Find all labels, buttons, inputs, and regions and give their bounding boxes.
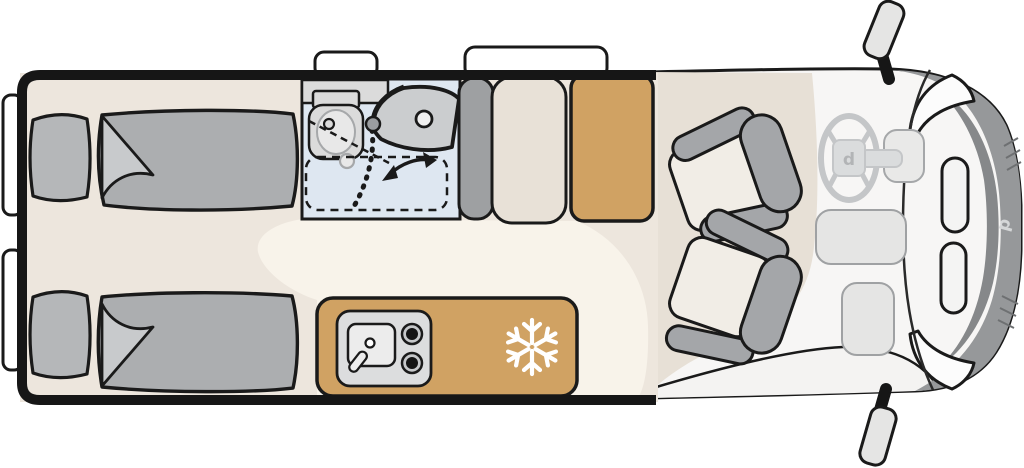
toilet-seat <box>317 110 355 154</box>
dashboard-panel <box>816 210 906 264</box>
pillow <box>30 115 90 201</box>
center-console <box>842 283 894 355</box>
bed-top <box>30 110 297 210</box>
partition-backrest <box>459 78 493 219</box>
toilet-flush-button <box>324 119 334 129</box>
side-mirror-bottom <box>858 389 899 467</box>
swivel-pivot <box>366 117 380 131</box>
bench-seat <box>492 77 566 223</box>
side-mirror-top <box>861 0 907 79</box>
bathroom <box>302 79 460 219</box>
washbasin-drain <box>416 111 432 127</box>
kitchen-block <box>317 298 577 396</box>
steering-column <box>860 150 902 167</box>
hob-burner-top <box>402 324 422 344</box>
wardrobe <box>571 75 653 221</box>
hood-vent-bottom <box>941 243 966 313</box>
cab-section: d d <box>650 69 1021 398</box>
hood-vent-top <box>942 158 968 232</box>
faucet <box>366 339 375 348</box>
motorhome-floorplan: d d <box>0 0 1024 468</box>
floorplan-canvas: d d <box>0 0 1024 468</box>
hob-burner-bottom <box>402 353 422 373</box>
brand-logo-steering-wheel: d <box>843 150 855 170</box>
habitation-section <box>3 47 658 402</box>
pillow <box>30 292 90 378</box>
bed-bottom <box>30 292 297 392</box>
